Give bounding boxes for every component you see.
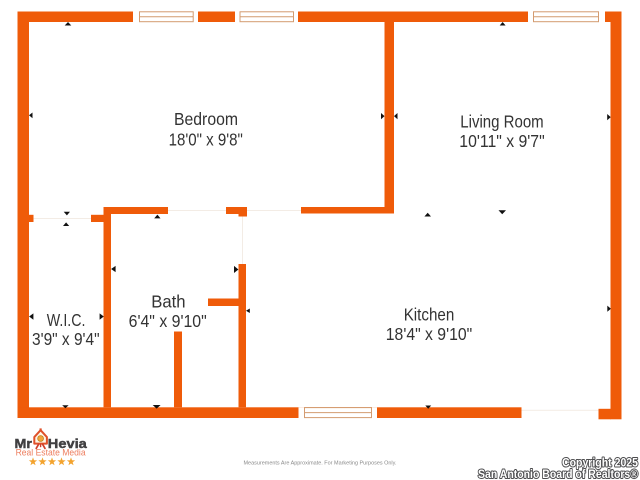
svg-text:San Antonio Board of Realtors®: San Antonio Board of Realtors®	[478, 467, 638, 480]
svg-text:Measurements Are Approximate.: Measurements Are Approximate. For Market…	[244, 461, 397, 467]
svg-text:Real Estate Media: Real Estate Media	[16, 448, 86, 458]
svg-text:Living Room: Living Room	[460, 112, 543, 132]
svg-text:Bedroom: Bedroom	[174, 109, 238, 129]
svg-text:18'4" x 9'10": 18'4" x 9'10"	[386, 324, 472, 344]
svg-text:6'4" x 9'10": 6'4" x 9'10"	[129, 311, 207, 331]
svg-text:18'0" x 9'8": 18'0" x 9'8"	[169, 129, 243, 149]
svg-text:3'9" x 9'4": 3'9" x 9'4"	[32, 329, 100, 349]
svg-text:Bath: Bath	[151, 292, 185, 312]
svg-text:Kitchen: Kitchen	[404, 305, 455, 325]
svg-text:10'11" x 9'7": 10'11" x 9'7"	[459, 131, 544, 151]
svg-text:W.I.C.: W.I.C.	[47, 310, 86, 330]
